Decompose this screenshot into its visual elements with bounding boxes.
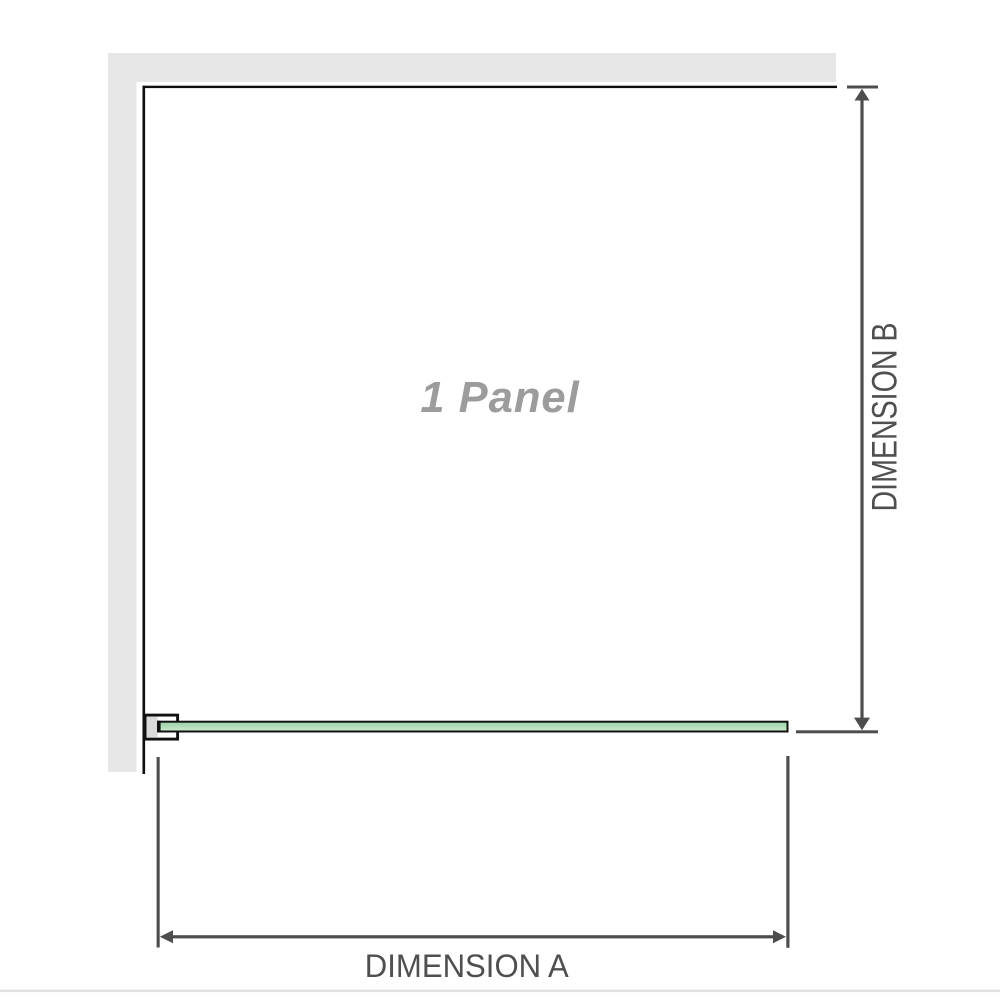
- svg-text:1 Panel: 1 Panel: [420, 374, 579, 422]
- svg-text:DIMENSION A: DIMENSION A: [365, 948, 570, 984]
- svg-text:DIMENSION B: DIMENSION B: [865, 323, 904, 512]
